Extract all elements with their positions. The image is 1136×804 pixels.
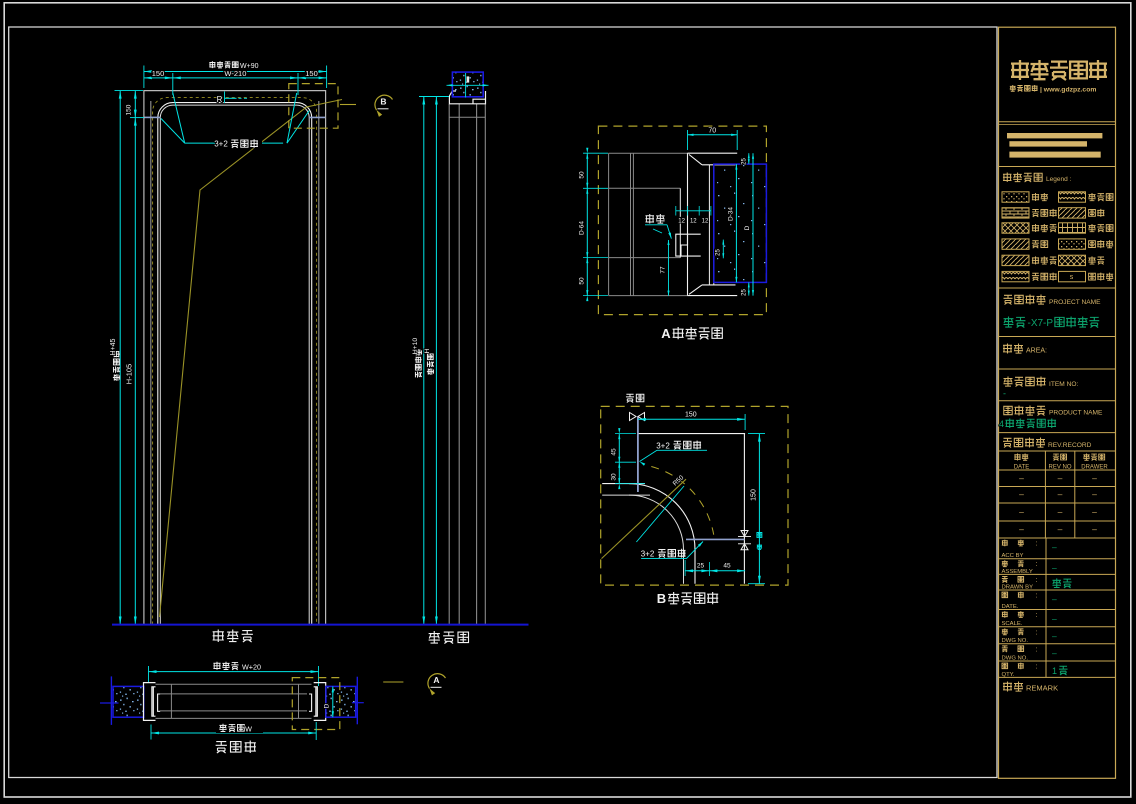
svg-text:–: – [1058, 507, 1063, 517]
svg-text:s: s [1070, 274, 1074, 281]
svg-text:| www.gdzpz.com: | www.gdzpz.com [1040, 86, 1096, 93]
svg-text:3+2: 3+2 [656, 441, 670, 450]
svg-text:25: 25 [741, 289, 747, 296]
svg-text:PRODUCT NAME: PRODUCT NAME [1049, 410, 1103, 417]
svg-text:AREA:: AREA: [1026, 348, 1047, 355]
svg-text:–: – [1092, 524, 1097, 534]
svg-text:ASSEMBLY: ASSEMBLY [1002, 569, 1033, 575]
svg-text:D: D [324, 703, 331, 708]
svg-text:–: – [1058, 524, 1063, 534]
svg-text:-X7-P: -X7-P [1028, 318, 1054, 329]
svg-text:H+10: H+10 [412, 338, 419, 355]
svg-text:45: 45 [723, 563, 731, 570]
svg-text:50: 50 [579, 277, 586, 285]
svg-text:A: A [433, 675, 439, 685]
svg-text:3+2: 3+2 [641, 550, 655, 559]
svg-text:–: – [1092, 507, 1097, 517]
svg-text:D-34: D-34 [727, 207, 734, 221]
svg-text:–: – [1092, 473, 1097, 483]
svg-text:A: A [661, 326, 671, 341]
svg-text::: : [1036, 593, 1038, 600]
svg-text:H+45: H+45 [110, 338, 117, 355]
svg-text:3+2: 3+2 [214, 140, 228, 149]
svg-text:12: 12 [690, 219, 697, 225]
svg-text:4: 4 [999, 419, 1004, 429]
svg-text:12: 12 [678, 219, 685, 225]
svg-text:50: 50 [579, 171, 586, 179]
svg-text:–: – [1019, 489, 1024, 499]
svg-text:Legend :: Legend : [1046, 176, 1071, 183]
svg-text:–: – [1019, 473, 1024, 483]
svg-text:150: 150 [126, 104, 133, 115]
svg-text:–: – [1019, 507, 1024, 517]
svg-text:H: H [424, 348, 431, 353]
svg-text:H-105: H-105 [125, 364, 134, 384]
svg-text:1: 1 [1052, 666, 1057, 676]
svg-text:D: D [744, 225, 751, 230]
svg-text::: : [1036, 646, 1038, 653]
svg-text:–: – [1052, 631, 1057, 641]
svg-text:D-64: D-64 [579, 221, 586, 235]
svg-text:R: R [217, 95, 223, 104]
svg-text:25: 25 [716, 249, 722, 256]
svg-text:–: – [1058, 489, 1063, 499]
svg-text:REV.RECORD: REV.RECORD [1048, 442, 1092, 449]
svg-text:W-210: W-210 [224, 69, 246, 78]
svg-text::: : [1036, 612, 1038, 619]
svg-text::: : [1036, 629, 1038, 636]
svg-text:–: – [1052, 563, 1057, 573]
svg-text::: : [1036, 561, 1038, 568]
svg-text:45: 45 [610, 448, 617, 456]
svg-text:PROJECT NAME: PROJECT NAME [1049, 299, 1101, 306]
svg-text:150: 150 [685, 412, 697, 419]
svg-text:B: B [380, 97, 386, 107]
svg-text:–: – [1052, 594, 1057, 604]
svg-text:30: 30 [610, 473, 617, 481]
svg-text:–: – [1052, 542, 1057, 552]
svg-text:70: 70 [708, 128, 716, 135]
svg-text:150: 150 [305, 69, 318, 78]
svg-text:150: 150 [751, 489, 758, 501]
svg-text:–: – [1052, 614, 1057, 624]
svg-text:–: – [1052, 648, 1057, 658]
svg-text:–: – [1058, 473, 1063, 483]
svg-text:B: B [657, 591, 666, 606]
svg-text:W+20: W+20 [242, 662, 261, 671]
svg-text:ACC BY: ACC BY [1002, 553, 1024, 559]
svg-text:ITEM NO:: ITEM NO: [1049, 381, 1078, 388]
svg-text:25: 25 [741, 158, 747, 165]
svg-text::: : [1036, 577, 1038, 584]
svg-text:REMARK: REMARK [1026, 684, 1058, 693]
svg-text:12: 12 [702, 219, 709, 225]
svg-text::: : [1036, 541, 1038, 548]
svg-text:25: 25 [697, 563, 705, 570]
svg-text:–: – [1019, 524, 1024, 534]
svg-text:QTY.: QTY. [1002, 672, 1015, 678]
svg-text::: : [1036, 664, 1038, 671]
svg-text:77: 77 [660, 266, 667, 274]
svg-text:-: - [1003, 389, 1006, 399]
svg-text:–: – [1092, 489, 1097, 499]
svg-text:150: 150 [152, 69, 165, 78]
svg-text:W: W [245, 724, 252, 733]
